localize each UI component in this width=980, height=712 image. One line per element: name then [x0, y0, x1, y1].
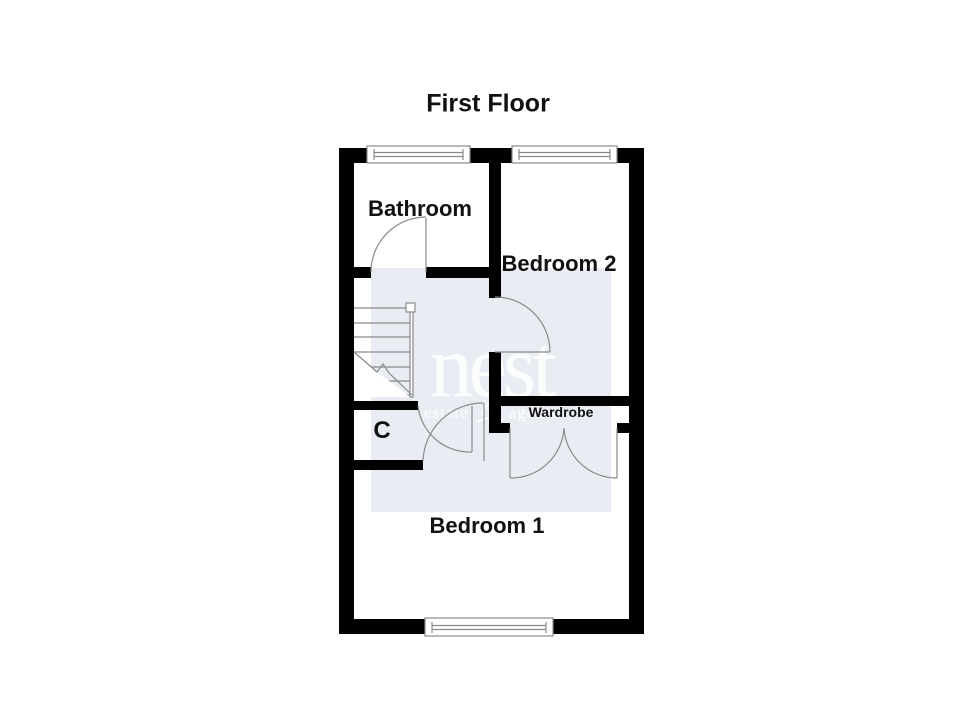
wall-hall-bedroom2-lower — [489, 352, 501, 433]
stair-stringer — [410, 306, 413, 397]
wall-top-3 — [617, 148, 644, 163]
bedroom1-door — [423, 403, 484, 461]
page-title: First Floor — [426, 90, 550, 119]
wall-bottom-2 — [553, 619, 644, 634]
stairs — [354, 303, 415, 397]
stair-break-mask — [354, 354, 410, 397]
wall-cupboard-top — [354, 401, 418, 410]
wall-left — [339, 148, 354, 634]
wall-wardrobe-front-left — [489, 423, 510, 433]
floorplan-page: nest estate agents — [0, 0, 980, 712]
stair-newel — [406, 303, 415, 312]
window-bathroom — [367, 146, 470, 163]
room-label-bathroom: Bathroom — [368, 196, 472, 222]
wardrobe-door-left — [510, 428, 564, 478]
room-label-cupboard: C — [373, 417, 390, 445]
wall-top-1 — [339, 148, 367, 163]
wall-wardrobe-front-right — [617, 423, 629, 433]
wall-hall-bedroom2-upper — [489, 163, 501, 298]
wardrobe-door-right — [564, 428, 617, 478]
bathroom-door — [371, 217, 426, 272]
window-bedroom2 — [512, 146, 617, 163]
wall-cupboard-bottom — [354, 460, 423, 470]
room-label-bedroom1: Bedroom 1 — [430, 513, 545, 539]
bedroom2-door — [495, 297, 550, 352]
wall-bathroom-bottom-left — [354, 267, 371, 278]
wall-bottom-1 — [339, 619, 425, 634]
room-label-bedroom2: Bedroom 2 — [502, 251, 617, 277]
wall-top-2 — [470, 148, 512, 163]
wall-right — [629, 148, 644, 634]
window-bedroom1 — [425, 618, 553, 636]
room-label-wardrobe: Wardrobe — [529, 404, 594, 420]
wall-bathroom-bottom-right — [426, 267, 489, 278]
